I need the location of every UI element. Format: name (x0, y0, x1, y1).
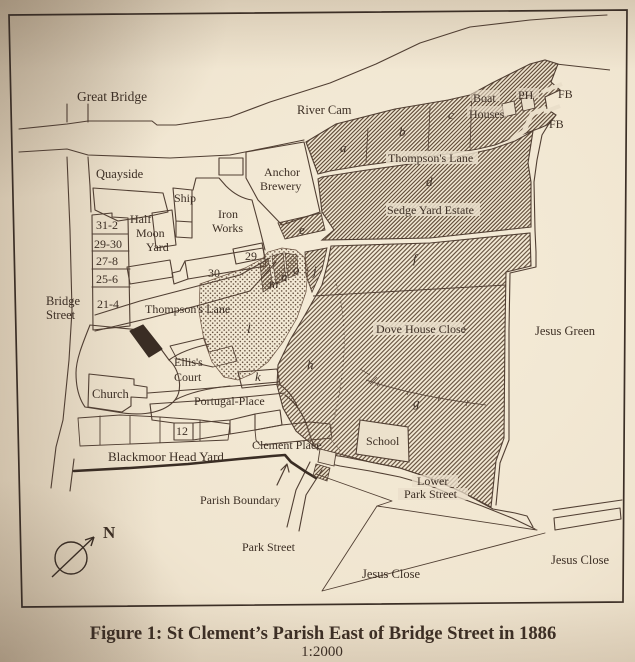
svg-text:N: N (103, 523, 116, 542)
svg-text:25-6: 25-6 (96, 272, 118, 286)
svg-text:l: l (247, 321, 251, 336)
svg-text:Park Street: Park Street (404, 487, 458, 501)
svg-text:30: 30 (208, 266, 220, 280)
svg-text:31-2: 31-2 (96, 218, 118, 232)
svg-text:Figure 1: St Clement’s Parish: Figure 1: St Clement’s Parish East of Br… (90, 623, 557, 644)
svg-text:12: 12 (176, 424, 188, 438)
svg-text:School: School (366, 434, 400, 448)
svg-text:Street: Street (46, 308, 76, 322)
svg-text:d: d (426, 174, 433, 189)
svg-text:River Cam: River Cam (297, 103, 352, 117)
svg-text:Yard: Yard (146, 240, 169, 254)
svg-text:PH: PH (518, 88, 534, 102)
svg-text:c: c (448, 107, 454, 122)
svg-text:Sedge Yard Estate: Sedge Yard Estate (387, 203, 474, 217)
svg-text:Half: Half (130, 212, 151, 226)
svg-text:1:2000: 1:2000 (301, 644, 343, 660)
svg-text:Lower: Lower (417, 474, 448, 488)
svg-text:Clement Place: Clement Place (252, 438, 322, 452)
svg-text:h: h (307, 357, 314, 372)
svg-text:Brewery: Brewery (260, 179, 301, 193)
svg-text:Boat: Boat (473, 91, 496, 105)
svg-text:o: o (293, 262, 300, 277)
svg-text:Moon: Moon (136, 226, 165, 240)
svg-text:FB: FB (558, 87, 573, 101)
svg-text:21-4: 21-4 (97, 297, 119, 311)
svg-text:Jesus Close: Jesus Close (551, 553, 609, 567)
svg-text:29-30: 29-30 (94, 237, 122, 251)
svg-text:Iron: Iron (218, 207, 238, 221)
svg-text:n: n (281, 269, 288, 284)
svg-text:29: 29 (245, 249, 257, 263)
svg-text:Houses: Houses (469, 107, 505, 121)
svg-text:Quayside: Quayside (96, 167, 144, 181)
svg-text:Park Street: Park Street (242, 540, 296, 554)
svg-text:m: m (269, 276, 278, 291)
svg-text:FB: FB (549, 117, 564, 131)
svg-text:Thompson's Lane: Thompson's Lane (388, 151, 473, 165)
svg-text:Blackmoor Head Yard: Blackmoor Head Yard (108, 449, 224, 464)
svg-text:Bridge: Bridge (46, 294, 80, 308)
svg-text:Works: Works (212, 221, 243, 235)
svg-text:Great Bridge: Great Bridge (77, 89, 147, 104)
svg-text:Parish Boundary: Parish Boundary (200, 493, 280, 507)
svg-text:g: g (413, 395, 420, 410)
svg-text:Thompson's Lane: Thompson's Lane (145, 302, 230, 316)
svg-text:Jesus Close: Jesus Close (362, 567, 420, 581)
svg-text:Ship: Ship (174, 191, 196, 205)
svg-text:Church: Church (92, 387, 130, 401)
svg-text:b: b (399, 124, 406, 139)
svg-text:Portugal-Place: Portugal-Place (194, 394, 265, 408)
svg-text:Jesus Green: Jesus Green (535, 324, 596, 338)
svg-text:k: k (255, 369, 261, 384)
svg-text:Ellis's: Ellis's (174, 355, 203, 369)
svg-text:Dove House Close: Dove House Close (376, 322, 466, 336)
svg-text:Anchor: Anchor (264, 165, 300, 179)
svg-text:e: e (299, 222, 305, 237)
svg-text:Court: Court (174, 370, 202, 384)
svg-text:27-8: 27-8 (96, 254, 118, 268)
svg-text:a: a (340, 140, 347, 155)
